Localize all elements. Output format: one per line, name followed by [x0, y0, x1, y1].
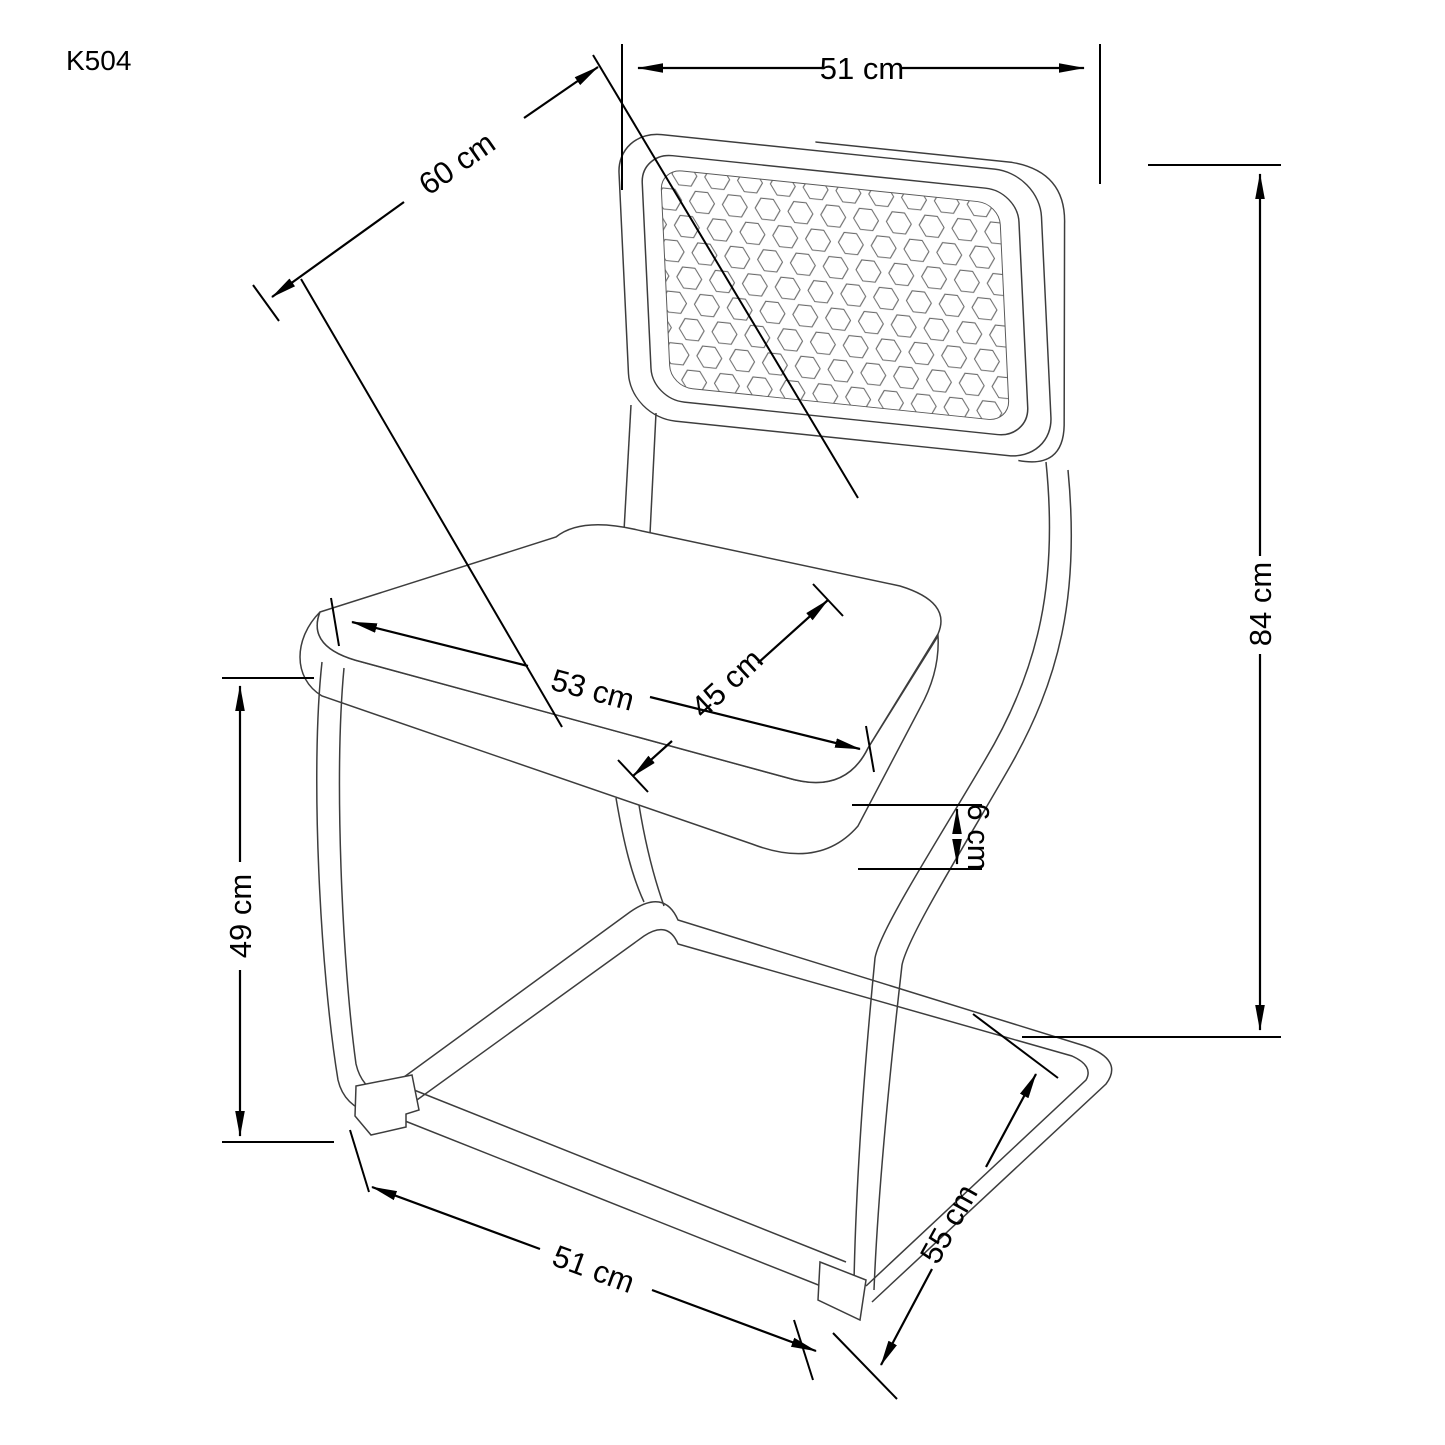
dimension-label: 6 cm	[961, 803, 996, 870]
dimension-label: 49 cm	[223, 874, 258, 958]
backrest-mesh	[660, 169, 1009, 422]
frame-tube-left-upper	[624, 405, 656, 534]
extension-line	[833, 1333, 897, 1399]
tube-line	[378, 902, 1112, 1302]
tube-line	[650, 413, 656, 534]
dim-base-width: 51 cm	[350, 1130, 816, 1380]
front-right-foot	[818, 1262, 866, 1320]
tick	[794, 1320, 813, 1380]
dimension-line	[652, 1290, 816, 1351]
tick	[253, 285, 279, 321]
dimension-label: 84 cm	[1243, 562, 1278, 646]
tube-line	[639, 805, 664, 906]
tube-line	[414, 1090, 846, 1262]
dimension-label: 51 cm	[548, 1238, 639, 1300]
dim-cushion-thickness: 6 cm	[852, 803, 996, 870]
dimension-line	[881, 1269, 932, 1365]
chair-dimension-diagram: 51 cm 60 cm 84 cm 53 cm 45 cm	[0, 0, 1445, 1445]
tube-line	[317, 662, 372, 1114]
tick	[350, 1130, 369, 1192]
frame-tube-left-lower	[616, 798, 664, 906]
dim-base-depth: 55 cm	[833, 1014, 1058, 1399]
dimension-label: 60 cm	[412, 125, 501, 202]
model-code-label: K504	[66, 45, 131, 76]
dimension-line	[272, 202, 404, 297]
dimension-label: 51 cm	[820, 51, 904, 86]
dimension-line	[524, 67, 598, 118]
dim-overall-height: 84 cm	[1022, 165, 1281, 1037]
chair-backrest	[617, 121, 1077, 466]
front-left-foot	[355, 1075, 419, 1135]
dimension-line	[372, 1187, 540, 1249]
tube-line	[340, 668, 386, 1096]
dimension-line	[986, 1074, 1036, 1167]
tube-line	[624, 405, 631, 531]
technical-drawing-page: 51 cm 60 cm 84 cm 53 cm 45 cm	[0, 0, 1445, 1445]
dimension-label: 55 cm	[913, 1179, 985, 1270]
base-floor-frame	[378, 902, 1112, 1302]
extension-line	[973, 1014, 1058, 1078]
front-left-leg	[317, 662, 386, 1114]
